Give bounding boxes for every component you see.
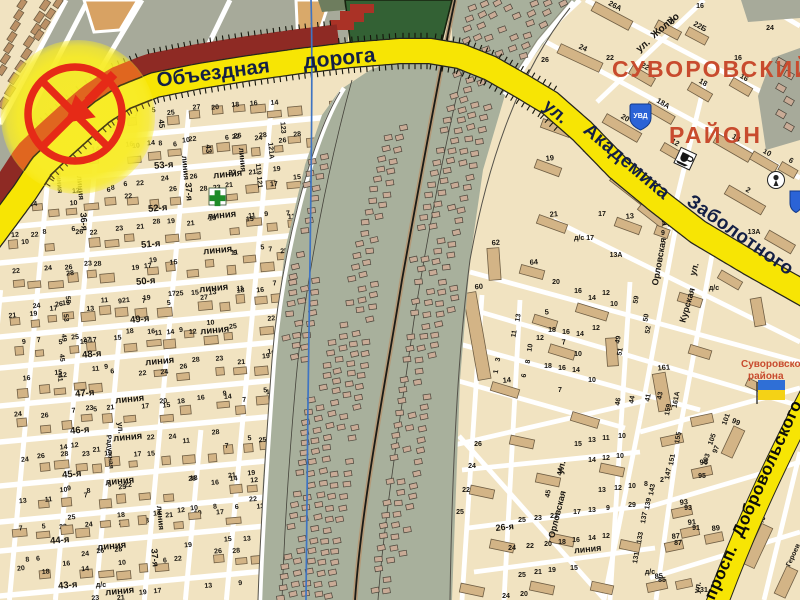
svg-text:18: 18	[117, 512, 125, 520]
svg-text:21: 21	[136, 223, 144, 231]
svg-text:43: 43	[204, 144, 214, 154]
svg-text:28: 28	[192, 356, 200, 364]
svg-text:д/с: д/с	[645, 569, 655, 576]
svg-text:15: 15	[224, 536, 232, 544]
svg-text:21: 21	[187, 220, 195, 228]
svg-text:22: 22	[249, 496, 257, 504]
svg-text:17: 17	[141, 403, 149, 411]
svg-text:26: 26	[41, 412, 49, 420]
svg-text:15: 15	[147, 450, 155, 458]
svg-text:14: 14	[81, 566, 89, 574]
svg-text:5: 5	[247, 435, 252, 442]
svg-text:18: 18	[126, 328, 134, 336]
svg-text:11: 11	[154, 330, 162, 338]
svg-text:44: 44	[628, 395, 636, 404]
svg-text:15: 15	[162, 402, 170, 410]
svg-text:УВД: УВД	[633, 113, 647, 120]
svg-text:26: 26	[214, 548, 222, 556]
svg-text:17: 17	[270, 181, 278, 189]
svg-text:43: 43	[656, 391, 664, 400]
svg-text:85: 85	[658, 577, 666, 584]
svg-text:20: 20	[552, 279, 560, 286]
svg-text:24: 24	[44, 265, 52, 273]
svg-text:50: 50	[642, 313, 650, 322]
svg-text:21: 21	[237, 359, 245, 367]
svg-text:18: 18	[548, 327, 556, 334]
svg-text:10: 10	[628, 483, 636, 490]
svg-text:5: 5	[544, 307, 549, 316]
svg-text:28: 28	[152, 218, 160, 226]
svg-text:18: 18	[42, 568, 50, 576]
svg-text:26-я: 26-я	[495, 521, 514, 533]
svg-text:25: 25	[229, 323, 237, 331]
svg-text:24: 24	[161, 175, 169, 183]
svg-text:18: 18	[236, 287, 244, 295]
svg-text:18: 18	[190, 475, 198, 483]
svg-text:7: 7	[71, 407, 76, 414]
svg-text:44-я: 44-я	[50, 534, 70, 547]
svg-text:37-я: 37-я	[149, 548, 161, 567]
svg-text:9: 9	[118, 298, 123, 305]
svg-text:16: 16	[197, 394, 205, 402]
svg-text:8: 8	[25, 556, 30, 563]
svg-text:7: 7	[142, 298, 147, 305]
svg-text:6: 6	[225, 135, 230, 142]
svg-text:49: 49	[614, 335, 622, 344]
svg-text:21: 21	[106, 404, 114, 412]
svg-text:26: 26	[278, 137, 286, 145]
svg-text:19: 19	[273, 166, 281, 174]
svg-text:18: 18	[558, 539, 566, 546]
svg-text:15: 15	[169, 259, 177, 267]
svg-text:7: 7	[19, 525, 24, 532]
svg-text:8: 8	[644, 481, 648, 488]
svg-text:28: 28	[211, 429, 219, 437]
svg-text:12: 12	[602, 533, 610, 540]
svg-text:11: 11	[45, 496, 53, 504]
svg-text:17: 17	[598, 211, 606, 218]
svg-text:22: 22	[124, 193, 132, 201]
svg-text:6: 6	[173, 141, 178, 148]
svg-text:14: 14	[270, 99, 278, 107]
svg-text:55: 55	[64, 296, 72, 304]
svg-text:19: 19	[139, 589, 147, 597]
svg-text:21: 21	[122, 297, 130, 305]
svg-text:45: 45	[58, 354, 66, 362]
svg-text:21: 21	[165, 512, 173, 520]
svg-text:23: 23	[84, 260, 92, 268]
svg-text:12: 12	[536, 335, 544, 342]
svg-text:15: 15	[246, 216, 254, 224]
svg-text:26: 26	[169, 186, 177, 194]
svg-text:28: 28	[66, 270, 74, 278]
svg-text:8: 8	[213, 503, 218, 510]
svg-text:22: 22	[12, 268, 20, 276]
svg-text:28: 28	[293, 131, 301, 139]
svg-text:60: 60	[474, 282, 483, 292]
svg-text:22: 22	[138, 370, 146, 378]
svg-text:9: 9	[238, 580, 243, 587]
svg-text:25: 25	[71, 334, 79, 342]
svg-text:13: 13	[598, 487, 606, 494]
svg-text:19: 19	[545, 153, 554, 163]
svg-text:16: 16	[250, 100, 258, 108]
svg-text:41: 41	[644, 393, 652, 402]
svg-text:10: 10	[526, 343, 534, 352]
svg-text:24: 24	[254, 135, 262, 143]
svg-text:13: 13	[514, 313, 522, 322]
svg-text:18: 18	[231, 101, 239, 109]
svg-text:17: 17	[133, 451, 141, 459]
svg-text:19: 19	[29, 310, 37, 318]
svg-text:43-я: 43-я	[58, 579, 78, 592]
svg-text:12: 12	[602, 290, 610, 297]
svg-text:14: 14	[502, 375, 512, 385]
svg-text:25: 25	[175, 290, 183, 298]
svg-text:19: 19	[184, 542, 192, 550]
svg-text:64: 64	[529, 257, 539, 267]
svg-text:50-я: 50-я	[136, 275, 156, 288]
svg-text:24: 24	[766, 25, 774, 32]
svg-text:9: 9	[179, 327, 184, 334]
svg-text:51-я: 51-я	[141, 238, 161, 251]
svg-text:95: 95	[698, 473, 706, 480]
svg-text:13: 13	[204, 582, 212, 590]
svg-text:20: 20	[520, 591, 528, 598]
svg-text:12: 12	[592, 325, 600, 332]
svg-text:20: 20	[544, 541, 552, 548]
svg-text:51: 51	[616, 347, 624, 356]
svg-text:48-я: 48-я	[82, 348, 102, 361]
svg-text:49-я: 49-я	[130, 313, 150, 326]
svg-text:20: 20	[211, 104, 219, 112]
svg-text:д/с: д/с	[96, 582, 106, 589]
svg-text:25: 25	[518, 572, 526, 579]
svg-text:9: 9	[222, 390, 227, 397]
svg-text:5: 5	[263, 387, 268, 394]
svg-text:87: 87	[674, 540, 682, 547]
svg-text:7: 7	[272, 280, 277, 287]
svg-text:д/с: д/с	[709, 285, 719, 292]
svg-text:12: 12	[189, 328, 197, 336]
svg-text:93: 93	[684, 505, 692, 512]
svg-text:10: 10	[190, 505, 198, 513]
svg-text:27: 27	[192, 104, 200, 112]
svg-text:23: 23	[215, 355, 223, 363]
svg-text:29: 29	[628, 502, 636, 509]
svg-text:13: 13	[588, 507, 596, 514]
svg-text:9: 9	[606, 505, 610, 512]
svg-text:16: 16	[574, 288, 582, 295]
svg-text:14: 14	[588, 535, 596, 542]
svg-text:22: 22	[267, 315, 275, 323]
svg-text:28: 28	[60, 451, 68, 459]
svg-text:45: 45	[157, 119, 167, 129]
svg-text:7: 7	[225, 443, 230, 450]
svg-text:46: 46	[614, 397, 622, 406]
svg-text:45-я: 45-я	[62, 468, 82, 481]
svg-text:11: 11	[602, 435, 610, 442]
svg-text:10: 10	[618, 433, 626, 440]
svg-text:9: 9	[22, 339, 27, 346]
svg-text:9: 9	[233, 250, 238, 257]
svg-text:6: 6	[110, 368, 115, 375]
svg-text:13: 13	[625, 211, 634, 221]
svg-text:25: 25	[67, 514, 75, 522]
svg-text:10: 10	[69, 200, 77, 208]
svg-text:10: 10	[574, 351, 582, 358]
svg-text:12: 12	[250, 477, 258, 485]
svg-text:10: 10	[616, 453, 624, 460]
svg-text:46-я: 46-я	[70, 424, 90, 437]
svg-text:11: 11	[510, 329, 518, 338]
svg-text:16: 16	[562, 329, 570, 336]
svg-text:28: 28	[93, 261, 101, 269]
svg-text:ул.: ул.	[115, 422, 125, 434]
svg-text:62: 62	[491, 238, 500, 248]
svg-text:13: 13	[243, 535, 251, 543]
svg-text:17: 17	[144, 263, 152, 271]
svg-text:23: 23	[82, 451, 90, 459]
svg-text:16: 16	[558, 365, 566, 372]
svg-text:25: 25	[258, 437, 266, 445]
svg-text:15: 15	[574, 441, 582, 448]
svg-text:13: 13	[86, 305, 94, 313]
svg-text:19: 19	[167, 218, 175, 226]
svg-text:12: 12	[614, 485, 622, 492]
svg-text:6: 6	[123, 181, 128, 188]
svg-text:13: 13	[588, 437, 596, 444]
svg-text:161: 161	[657, 362, 670, 372]
svg-text:РАЙОН: РАЙОН	[669, 121, 762, 148]
svg-text:27: 27	[83, 337, 91, 345]
svg-text:47-я: 47-я	[75, 387, 95, 400]
svg-text:25: 25	[167, 109, 175, 117]
svg-text:21: 21	[534, 569, 542, 576]
svg-text:53-я: 53-я	[154, 159, 174, 172]
svg-text:18: 18	[544, 363, 552, 370]
svg-text:37-я: 37-я	[183, 182, 195, 201]
svg-text:5: 5	[260, 244, 265, 251]
svg-text:9: 9	[67, 485, 72, 492]
svg-text:14: 14	[588, 457, 596, 464]
svg-text:22: 22	[232, 133, 240, 141]
svg-text:14: 14	[588, 295, 596, 302]
svg-text:10: 10	[588, 377, 596, 384]
svg-text:22: 22	[89, 229, 97, 237]
svg-text:9: 9	[661, 230, 665, 237]
svg-text:59: 59	[632, 295, 640, 304]
svg-text:22: 22	[526, 543, 534, 550]
svg-text:23: 23	[534, 515, 542, 522]
svg-text:21: 21	[549, 209, 558, 219]
svg-text:91: 91	[692, 525, 700, 532]
svg-text:15: 15	[113, 335, 121, 343]
svg-text:11: 11	[182, 438, 190, 446]
svg-text:17: 17	[49, 305, 57, 313]
svg-text:8: 8	[42, 229, 47, 236]
svg-text:10: 10	[21, 239, 29, 247]
svg-text:16: 16	[147, 328, 155, 336]
svg-text:9: 9	[104, 364, 109, 371]
svg-text:26: 26	[179, 363, 187, 371]
svg-text:26: 26	[37, 453, 45, 461]
svg-text:14: 14	[166, 329, 174, 337]
svg-text:12: 12	[11, 232, 19, 240]
svg-text:Суворовского: Суворовского	[741, 359, 800, 370]
svg-text:27: 27	[200, 294, 208, 302]
svg-text:52-я: 52-я	[148, 202, 168, 215]
svg-text:22: 22	[147, 434, 155, 442]
svg-text:36-я: 36-я	[78, 212, 90, 231]
svg-text:24: 24	[168, 433, 176, 441]
svg-text:22: 22	[31, 231, 39, 239]
svg-text:17: 17	[153, 588, 161, 596]
svg-text:21: 21	[8, 312, 16, 320]
svg-text:14: 14	[229, 475, 237, 483]
svg-text:5: 5	[41, 523, 46, 530]
svg-text:12: 12	[602, 455, 610, 462]
svg-text:22: 22	[174, 555, 182, 563]
svg-text:7: 7	[242, 397, 247, 404]
svg-text:8: 8	[158, 140, 163, 147]
svg-text:СУВОРОВСКИЙ: СУВОРОВСКИЙ	[612, 55, 800, 82]
svg-text:16: 16	[696, 3, 704, 10]
svg-text:28: 28	[199, 185, 207, 193]
svg-text:23: 23	[91, 595, 99, 600]
svg-text:45: 45	[544, 489, 552, 498]
svg-text:12: 12	[177, 507, 185, 515]
svg-text:16: 16	[62, 560, 70, 568]
svg-text:41: 41	[56, 374, 64, 382]
svg-text:19: 19	[131, 264, 139, 272]
svg-text:7: 7	[268, 246, 273, 253]
svg-text:24: 24	[508, 545, 516, 552]
svg-text:6: 6	[235, 504, 240, 511]
svg-text:16: 16	[22, 375, 30, 383]
svg-text:15: 15	[293, 174, 301, 182]
svg-text:52: 52	[644, 325, 652, 334]
svg-text:11: 11	[92, 365, 100, 373]
svg-text:123: 123	[278, 122, 286, 134]
svg-text:22: 22	[462, 487, 470, 494]
svg-text:53: 53	[62, 314, 70, 322]
svg-text:15: 15	[570, 565, 578, 572]
svg-text:6: 6	[163, 557, 168, 564]
svg-text:24: 24	[21, 456, 29, 464]
svg-text:7: 7	[558, 387, 562, 394]
svg-text:24: 24	[81, 551, 89, 559]
svg-text:10: 10	[182, 137, 190, 145]
svg-text:19: 19	[548, 567, 556, 574]
svg-text:23: 23	[85, 405, 93, 413]
svg-text:20: 20	[17, 565, 25, 573]
svg-text:28: 28	[232, 547, 240, 555]
svg-text:7: 7	[561, 337, 566, 346]
svg-text:13А: 13А	[610, 252, 623, 259]
svg-text:7: 7	[84, 492, 89, 499]
svg-text:5: 5	[167, 300, 172, 307]
svg-text:18: 18	[177, 398, 185, 406]
svg-text:д/с 17: д/с 17	[574, 235, 594, 242]
svg-text:10: 10	[118, 559, 126, 567]
svg-text:10: 10	[610, 301, 618, 308]
svg-text:6: 6	[36, 555, 41, 562]
svg-text:15: 15	[191, 289, 199, 297]
svg-text:25: 25	[518, 517, 526, 524]
svg-text:16: 16	[572, 537, 580, 544]
svg-text:23: 23	[115, 225, 123, 233]
svg-text:16: 16	[256, 287, 264, 295]
svg-text:26: 26	[541, 57, 549, 64]
svg-text:21: 21	[92, 446, 100, 454]
svg-text:121А: 121А	[266, 142, 274, 159]
svg-text:14: 14	[576, 331, 584, 338]
svg-text:26: 26	[474, 441, 482, 448]
svg-text:14: 14	[572, 367, 580, 374]
svg-text:6: 6	[71, 226, 76, 233]
svg-text:25: 25	[456, 509, 464, 516]
svg-text:13: 13	[19, 498, 27, 506]
svg-text:22: 22	[136, 180, 144, 188]
svg-text:7: 7	[37, 337, 42, 344]
svg-text:24: 24	[468, 463, 476, 470]
svg-text:49: 49	[60, 334, 68, 342]
svg-text:16: 16	[211, 479, 219, 487]
svg-text:17: 17	[573, 509, 581, 516]
svg-text:12: 12	[71, 442, 79, 450]
svg-text:19: 19	[262, 353, 270, 361]
svg-text:24: 24	[32, 303, 40, 311]
svg-text:24: 24	[160, 369, 168, 377]
svg-text:24: 24	[14, 411, 22, 419]
svg-text:9: 9	[264, 211, 269, 218]
svg-text:89: 89	[711, 523, 720, 533]
svg-text:24: 24	[502, 593, 510, 600]
svg-text:11: 11	[101, 297, 109, 305]
